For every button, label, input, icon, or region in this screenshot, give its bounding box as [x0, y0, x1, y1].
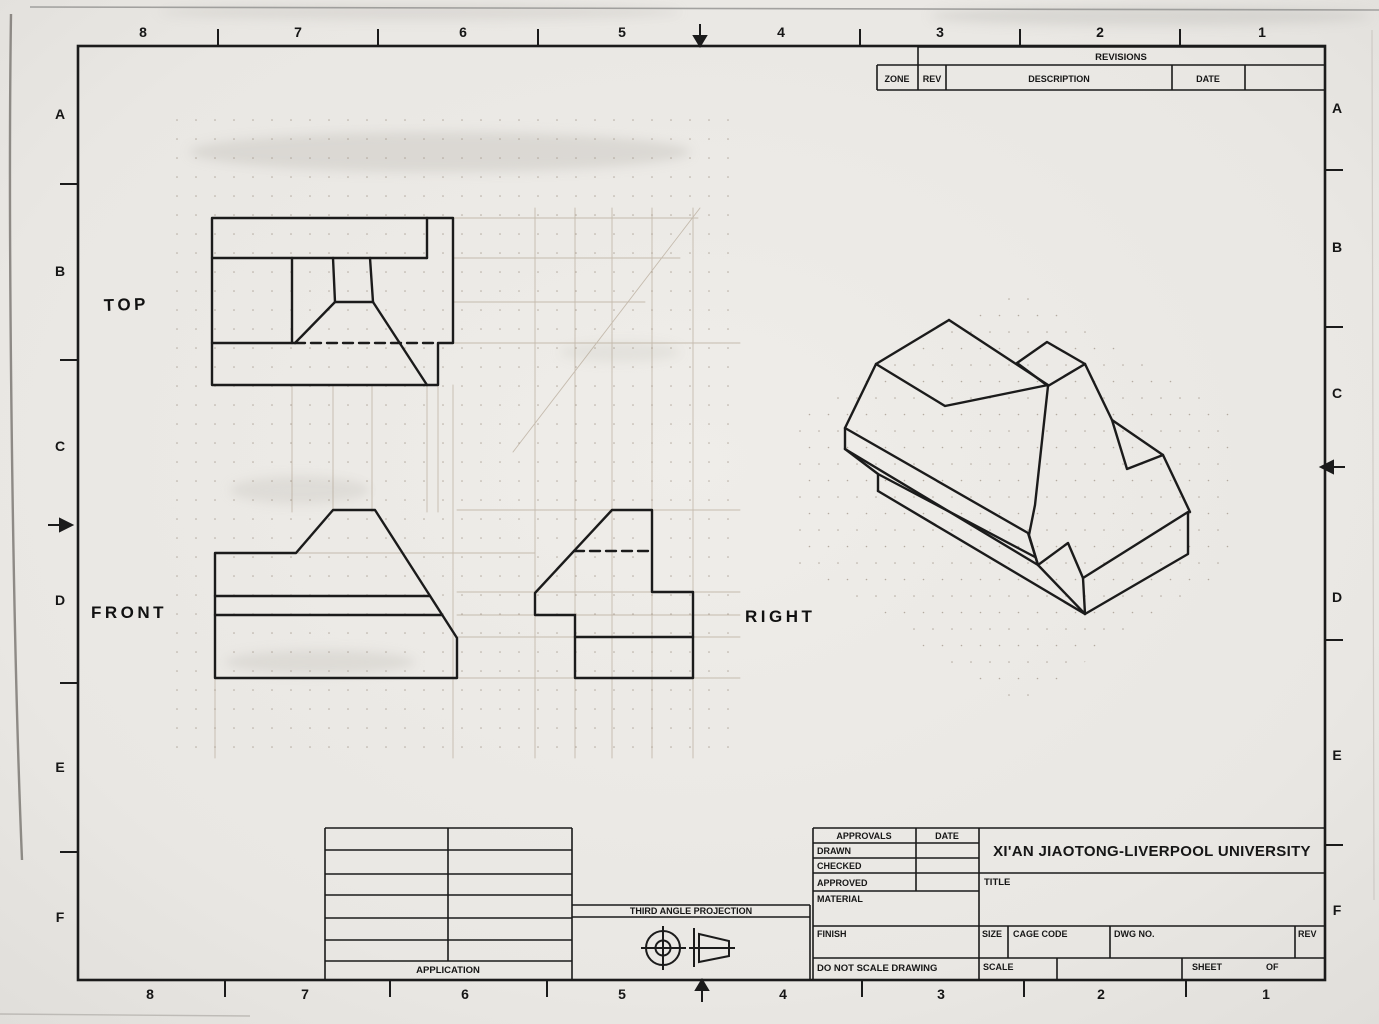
zone-right-a: A [1332, 100, 1342, 116]
front-view-label: FRONT [91, 603, 167, 622]
zone-top-1: 1 [1258, 24, 1266, 40]
zone-top-8: 8 [139, 24, 147, 40]
zone-right-b: B [1332, 239, 1342, 255]
zone-left-f: F [56, 909, 65, 925]
zone-left-b: B [55, 263, 65, 279]
zone-top-4: 4 [777, 24, 785, 40]
zone-top-2: 2 [1096, 24, 1104, 40]
zone-left-a: A [55, 106, 65, 122]
drawn-label: DRAWN [817, 846, 851, 856]
material-label: MATERIAL [817, 894, 863, 904]
dwg-no-label: DWG NO. [1114, 929, 1155, 939]
zone-top-7: 7 [294, 24, 302, 40]
zone-bottom-8: 8 [146, 986, 154, 1002]
top-view-label: TOP [103, 294, 149, 315]
rev-label: REV [1298, 929, 1317, 939]
revisions-col-zone: ZONE [884, 74, 909, 84]
revisions-col-rev: REV [923, 74, 942, 84]
cage-code-label: CAGE CODE [1013, 929, 1068, 939]
finish-label: FINISH [817, 929, 847, 939]
do-not-scale-label: DO NOT SCALE DRAWING [817, 963, 937, 974]
revisions-col-description: DESCRIPTION [1028, 74, 1090, 84]
zone-bottom-7: 7 [301, 986, 309, 1002]
zone-bottom-4: 4 [779, 986, 787, 1002]
size-label: SIZE [982, 929, 1002, 939]
scanned-drawing-sheet: 8 7 6 5 4 3 2 1 8 7 6 5 4 3 2 1 A B C D … [0, 0, 1379, 1024]
application-label: APPLICATION [416, 965, 480, 976]
zone-top-6: 6 [459, 24, 467, 40]
zone-right-f: F [1333, 902, 1342, 918]
zone-bottom-1: 1 [1262, 986, 1270, 1002]
zone-left-e: E [55, 759, 64, 775]
zone-right-e: E [1332, 747, 1341, 763]
scale-label: SCALE [983, 962, 1014, 972]
zone-top-5: 5 [618, 24, 626, 40]
projection-label: THIRD ANGLE PROJECTION [630, 906, 752, 916]
zone-right-d: D [1332, 589, 1342, 605]
zone-bottom-6: 6 [461, 986, 469, 1002]
zone-bottom-2: 2 [1097, 986, 1105, 1002]
of-label: OF [1266, 962, 1279, 972]
approvals-header: APPROVALS [836, 831, 891, 841]
zone-left-d: D [55, 592, 65, 608]
zone-bottom-5: 5 [618, 986, 626, 1002]
sheet-label: SHEET [1192, 962, 1223, 972]
approved-label: APPROVED [817, 878, 868, 888]
zone-bottom-3: 3 [937, 986, 945, 1002]
title-label: TITLE [984, 877, 1010, 888]
revisions-title: REVISIONS [1095, 52, 1147, 63]
zone-top-3: 3 [936, 24, 944, 40]
zone-right-c: C [1332, 385, 1342, 401]
zone-left-c: C [55, 438, 65, 454]
right-view-label: RIGHT [745, 607, 815, 626]
company-name: XI'AN JIAOTONG-LIVERPOOL UNIVERSITY [993, 843, 1311, 860]
checked-label: CHECKED [817, 861, 862, 871]
drawing-sheet-svg: 8 7 6 5 4 3 2 1 8 7 6 5 4 3 2 1 A B C D … [0, 0, 1379, 1024]
approvals-date-header: DATE [935, 831, 959, 841]
revisions-col-date: DATE [1196, 74, 1220, 84]
